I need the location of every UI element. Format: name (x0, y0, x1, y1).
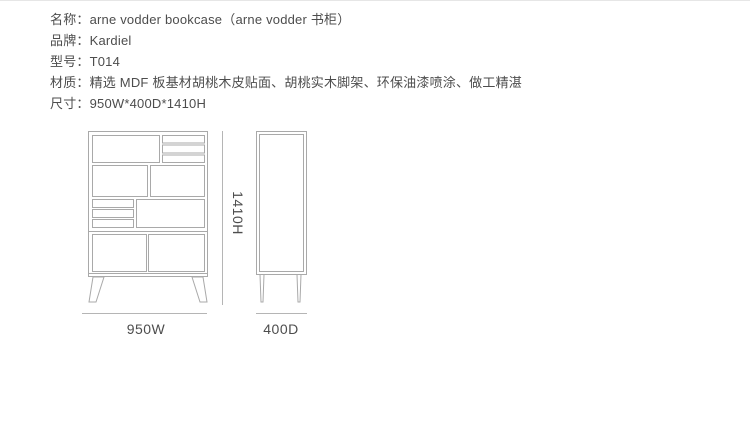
shelf-compartment (93, 166, 148, 197)
shelf-compartment (137, 200, 205, 228)
width-dimension-label: 950W (127, 321, 166, 337)
front-left-leg (89, 277, 104, 302)
shelf-compartment (93, 136, 160, 163)
shelf-compartment (151, 166, 205, 197)
drawer-front (163, 145, 205, 153)
side-panel-inner (260, 135, 304, 272)
door-front (93, 235, 147, 272)
side-right-leg (297, 275, 301, 303)
depth-dimension-label: 400D (263, 321, 298, 337)
front-right-leg (192, 277, 207, 302)
drawer-front (93, 220, 134, 228)
front-view-drawing (89, 132, 208, 303)
drawer-front (93, 200, 134, 208)
side-view-drawing (257, 132, 307, 303)
drawer-front (163, 136, 205, 144)
side-left-leg (260, 275, 264, 303)
dimension-diagram: 950W 400D 1410H (0, 0, 750, 432)
drawer-front (163, 155, 205, 163)
drawer-front (93, 210, 134, 218)
height-dimension-label: 1410H (230, 191, 246, 235)
door-front (149, 235, 205, 272)
product-spec-page: 名称：arne vodder bookcase（arne vodder 书柜） … (0, 0, 750, 432)
side-outline (257, 132, 307, 275)
